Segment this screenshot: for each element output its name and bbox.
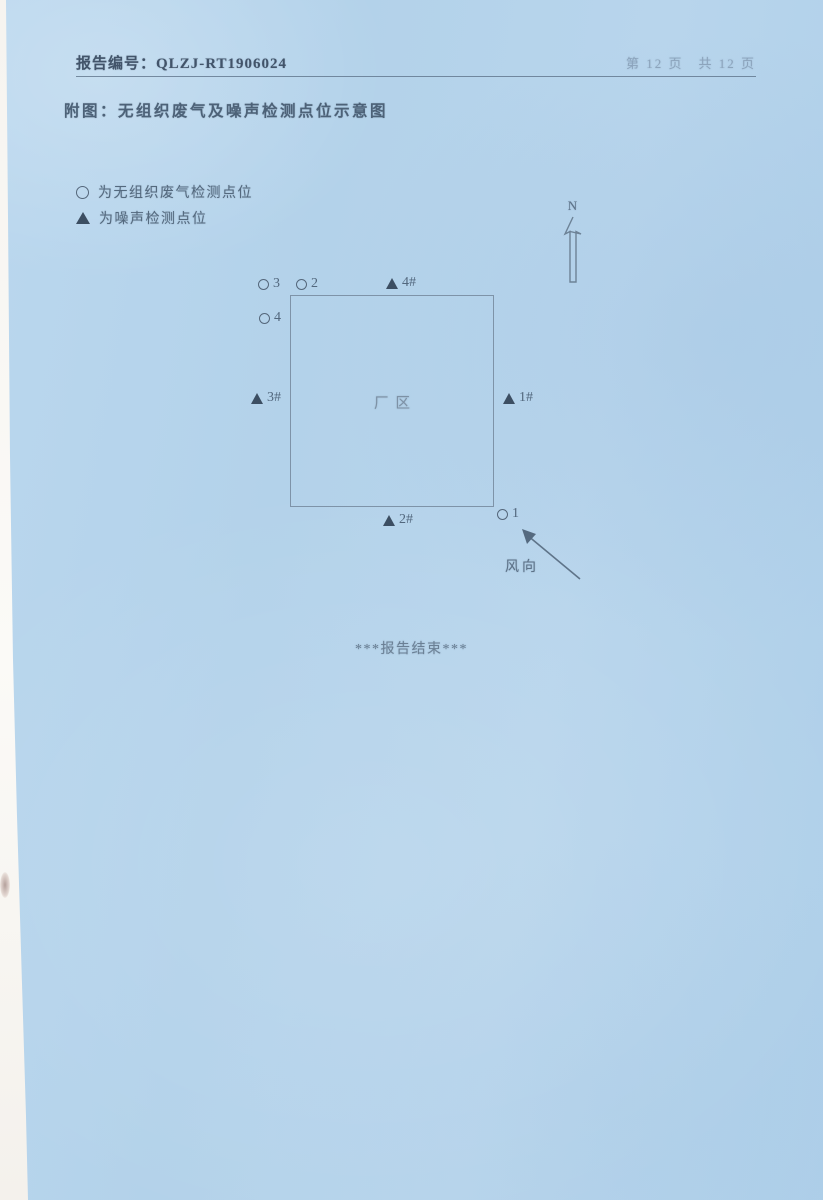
noise-point-2: 2# <box>383 513 413 527</box>
wind-direction-label: 风向 <box>505 556 539 576</box>
circle-marker-icon <box>296 279 307 290</box>
north-arrow-icon <box>556 214 590 286</box>
scan-edge-smudge <box>0 872 10 898</box>
triangle-marker-icon <box>503 393 515 404</box>
circle-marker-icon <box>258 279 269 290</box>
legend-item-noise: 为噪声检测点位 <box>76 205 253 231</box>
legend-item-label: 为无组织废气检测点位 <box>98 182 253 202</box>
triangle-marker-icon <box>386 278 398 289</box>
end-of-report-text: ***报告结束*** <box>0 638 823 658</box>
noise-point-4: 4# <box>386 276 416 290</box>
point-label: 4 <box>274 310 281 326</box>
report-header: 报告编号：QLZJ-RT1906024 第 12 页 共 12 页 <box>76 52 756 77</box>
circle-marker-icon <box>259 313 270 324</box>
north-label: N <box>556 198 590 214</box>
point-label: 4# <box>402 275 416 291</box>
page-indicator: 第 12 页 共 12 页 <box>626 53 756 72</box>
noise-point-1: 1# <box>503 391 533 405</box>
point-label: 1# <box>519 390 533 406</box>
north-indicator: N <box>556 198 590 291</box>
point-label: 2 <box>311 276 318 292</box>
gas-point-1: 1 <box>497 507 519 521</box>
attachment-title: 附图：无组织废气及噪声检测点位示意图 <box>64 99 388 121</box>
triangle-marker-icon <box>76 212 90 224</box>
wind-direction-arrow-icon <box>514 524 592 586</box>
point-label: 1 <box>512 506 519 522</box>
point-label: 2# <box>399 512 413 528</box>
triangle-marker-icon <box>251 393 263 404</box>
gas-point-3: 3 <box>258 277 280 291</box>
circle-marker-icon <box>76 186 89 199</box>
report-number-label: 报告编号： <box>76 56 156 72</box>
legend-item-label: 为噪声检测点位 <box>99 208 208 228</box>
gas-point-4: 4 <box>259 311 281 325</box>
triangle-marker-icon <box>383 515 395 526</box>
scanned-report-page: 报告编号：QLZJ-RT1906024 第 12 页 共 12 页 附图：无组织… <box>0 0 823 1200</box>
report-number: 报告编号：QLZJ-RT1906024 <box>76 52 287 73</box>
report-number-value: QLZJ-RT1906024 <box>156 56 287 72</box>
circle-marker-icon <box>497 509 508 520</box>
point-label: 3# <box>267 390 281 406</box>
noise-point-3: 3# <box>251 391 281 405</box>
legend: 为无组织废气检测点位 为噪声检测点位 <box>76 179 253 231</box>
gas-point-2: 2 <box>296 277 318 291</box>
plant-area-label: 厂区 <box>290 392 494 413</box>
legend-item-gas: 为无组织废气检测点位 <box>76 179 253 205</box>
point-label: 3 <box>273 276 280 292</box>
